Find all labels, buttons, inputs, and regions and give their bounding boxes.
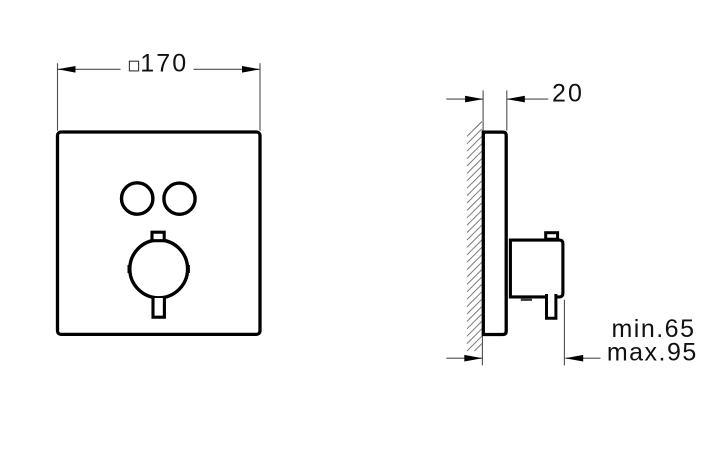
- svg-text:170: 170: [140, 50, 188, 78]
- svg-text:20: 20: [552, 80, 584, 108]
- svg-text:max.95: max.95: [607, 339, 698, 367]
